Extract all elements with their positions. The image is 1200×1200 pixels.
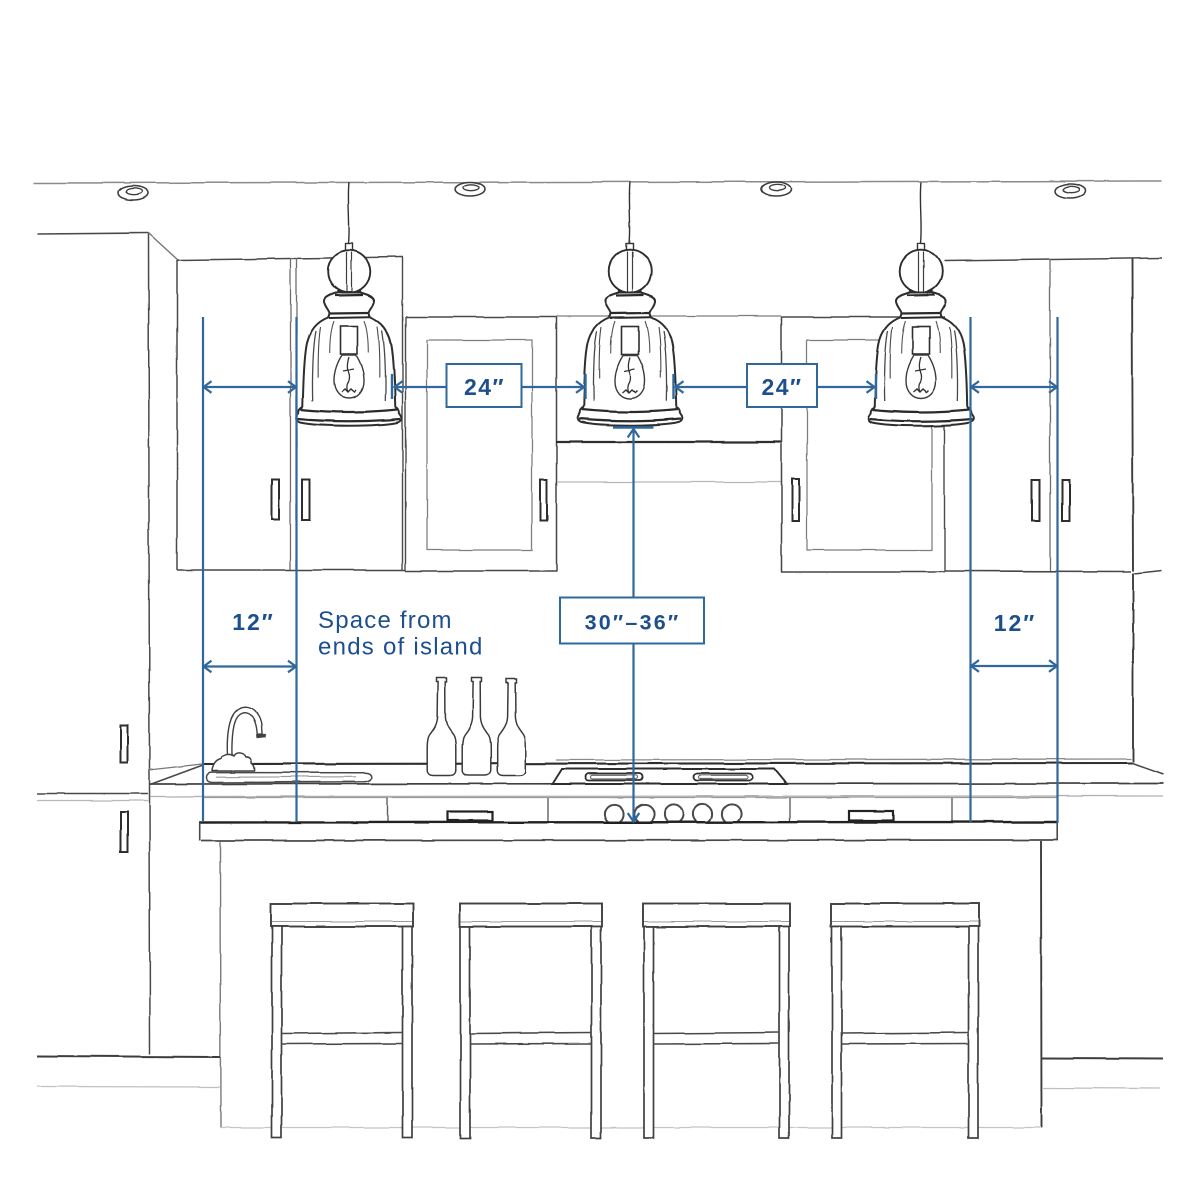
svg-text:12″: 12″: [232, 609, 275, 635]
svg-text:24″: 24″: [464, 374, 505, 400]
svg-text:30″–36″: 30″–36″: [585, 611, 681, 635]
svg-text:ends of island: ends of island: [318, 634, 484, 661]
svg-text:24″: 24″: [761, 374, 802, 400]
svg-text:12″: 12″: [994, 610, 1037, 636]
svg-text:Space from: Space from: [318, 607, 453, 634]
